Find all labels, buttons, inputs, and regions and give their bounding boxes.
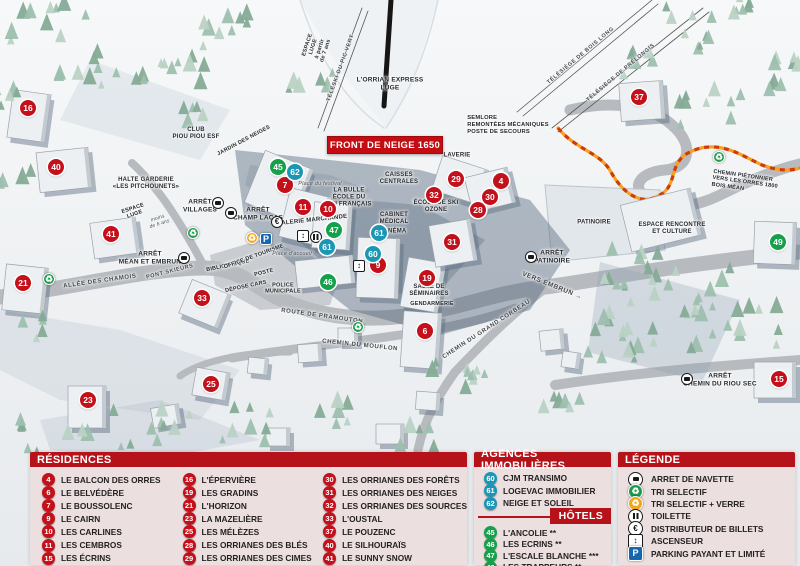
legend-item-label: LES ORRIANES DES CIMES: [202, 553, 312, 563]
legend-item: ♻TRI SELECTIF + VERRE: [628, 498, 795, 510]
map-label: CAISSES CENTRALES: [380, 172, 418, 186]
legend-item-label: ARRET DE NAVETTE: [651, 474, 734, 484]
elevator-icon: ↕: [297, 230, 309, 242]
map-label: ESPACE LUGE à partir de 7 ans: [301, 33, 333, 63]
bus-icon: [525, 251, 537, 263]
legend-item: ↕ASCENSEUR: [628, 535, 795, 547]
parking-icon: P: [260, 233, 272, 245]
map-label: ESPACE RENCONTRE ET CULTURE: [638, 222, 705, 236]
legend-item: 40LE SILHOURAÏS: [323, 538, 467, 551]
marker-number: 11: [42, 539, 55, 552]
marker-number: 62: [484, 497, 497, 510]
legend-item-label: L'ESCALE BLANCHE ***: [503, 551, 599, 561]
marker-number: 25: [183, 525, 196, 538]
legend-item-label: LES CEMBROS: [61, 540, 122, 550]
map-label: ROUTE DE PRAMOUTON: [281, 308, 364, 327]
residences-column: 16L'ÉPERVIÈRE19LES GRADINS21L'HORIZON23L…: [183, 473, 324, 565]
map-marker-19: 19: [419, 270, 435, 286]
map-marker-28: 28: [470, 202, 486, 218]
marker-number: 21: [183, 499, 196, 512]
legend-item-label: LES ORRIANES DES NEIGES: [342, 488, 457, 498]
ski-resort-map: L'ORRIAN EXPRESS LUGEESPACE LUGE à parti…: [0, 0, 800, 566]
map-label: DÉPOSE CARS: [225, 279, 268, 294]
legend-item-label: LES MÉLÈZES: [202, 527, 260, 537]
marker-number: 19: [183, 486, 196, 499]
legend-item: 31LES ORRIANES DES NEIGES: [323, 486, 467, 499]
legend-item: 30LES ORRIANES DES FORÊTS: [323, 473, 467, 486]
map-label: JARDIN DES NEIGES: [216, 124, 271, 157]
map-marker-33: 33: [194, 290, 210, 306]
map-marker-47: 47: [326, 222, 342, 238]
map-label: SEMLORE REMONTÉES MÉCANIQUES POSTE DE SE…: [467, 115, 549, 135]
marker-number: 30: [323, 473, 336, 486]
legend-item-label: LOGEVAC IMMOBILIER: [503, 486, 596, 496]
marker-number: 33: [323, 512, 336, 525]
bus-icon: [178, 252, 190, 264]
map-label: ALLÉE DES CHAMOIS: [63, 273, 137, 290]
map-marker-41: 41: [103, 226, 119, 242]
legend-item: 49LES TRAPPEURS **: [484, 561, 611, 566]
map-label: VERS EMBRUN →: [521, 270, 583, 301]
legend-item-label: LES GRADINS: [202, 488, 259, 498]
legend-item-label: LE CAIRN: [61, 514, 100, 524]
legend-item-label: LE POUZENC: [342, 527, 395, 537]
map-marker-49: 49: [770, 234, 786, 250]
legend-item: ♻TRI SELECTIF: [628, 485, 795, 497]
recycle-green-icon: ♻: [713, 151, 725, 163]
legend-item-label: LES CARLINES: [61, 527, 122, 537]
legend-item-label: LE SILHOURAÏS: [342, 540, 406, 550]
legend-item-label: LE BALCON DES ORRES: [61, 475, 161, 485]
map-label: moins de 6 ans: [147, 213, 170, 231]
legende-header: LÉGENDE: [618, 452, 795, 467]
recycle-green-icon: ♻: [187, 227, 199, 239]
legend-item-label: LES ORRIANES DES FORÊTS: [342, 475, 460, 485]
marker-number: 40: [323, 539, 336, 552]
legend-item: 19LES GRADINS: [183, 486, 324, 499]
map-marker-45: 45: [270, 159, 286, 175]
marker-number: 41: [323, 552, 336, 565]
legend-item: 45L'ANCOLIE **: [484, 527, 611, 539]
legend-item: 46LES ECRINS **: [484, 538, 611, 550]
marker-number: 60: [484, 472, 497, 485]
map-marker-29: 29: [448, 171, 464, 187]
residences-list: 4LE BALCON DES ORRES6LE BELVÉDÈRE7LE BOU…: [30, 467, 467, 565]
legend-item: 7LE BOUSSOLENC: [42, 499, 183, 512]
legend-item-label: DISTRIBUTEUR DE BILLETS: [651, 524, 763, 534]
panel-agences-hotels: AGENCES IMMOBILIÈRES 60CJM TRANSIMO61LOG…: [474, 452, 611, 565]
legend-item-label: LE BELVÉDÈRE: [61, 488, 124, 498]
map-label: HALTE GARDERIE «LES PITCHOUNETS»: [113, 177, 179, 191]
legend-item-label: LES TRAPPEURS **: [503, 562, 581, 566]
legend-item: 16L'ÉPERVIÈRE: [183, 473, 324, 486]
map-marker-25: 25: [203, 376, 219, 392]
marker-number: 49: [484, 561, 497, 566]
legend-item-label: LES ORRIANES DES SOURCES: [342, 501, 467, 511]
legend-item-label: L'ANCOLIE **: [503, 528, 556, 538]
map-label: ARRÊT CHEMIN DU RIOU SEC: [683, 372, 757, 387]
map-annotations: L'ORRIAN EXPRESS LUGEESPACE LUGE à parti…: [0, 0, 800, 450]
map-label: CHEMIN DU GRAND CORBEAU: [442, 299, 533, 361]
legend-item: 10LES CARLINES: [42, 525, 183, 538]
agences-header: AGENCES IMMOBILIÈRES: [474, 452, 611, 467]
legend-item: 15LES ÉCRINS: [42, 552, 183, 565]
residences-column: 4LE BALCON DES ORRES6LE BELVÉDÈRE7LE BOU…: [42, 473, 183, 565]
map-label: CLUB PIOU PIOU ESF: [173, 127, 220, 141]
map-label: ARRÊT PATINOIRE: [534, 249, 570, 264]
marker-number: 9: [42, 512, 55, 525]
recycle-glass-icon: ♻: [246, 232, 258, 244]
elevator-icon: ↕: [353, 260, 365, 272]
legend-item: 33L'OUSTAL: [323, 512, 467, 525]
map-marker-46: 46: [320, 274, 336, 290]
map-label: PONT SKIEURS: [146, 263, 195, 281]
map-marker-21: 21: [15, 275, 31, 291]
map-label: TÉLÉSIÈGE DE BOIS LONG: [546, 26, 616, 86]
bus-icon: [681, 373, 693, 385]
legend-item: 29LES ORRIANES DES CIMES: [183, 552, 324, 565]
map-label: CABINET MÉDICAL: [380, 212, 409, 226]
marker-number: 31: [323, 486, 336, 499]
hotels-header: HÔTELS: [550, 508, 611, 524]
parking-icon: P: [628, 546, 643, 561]
legend-item: 23LA MAZELIÈRE: [183, 512, 324, 525]
legend-item: 41LE SUNNY SNOW: [323, 552, 467, 565]
legend-item-label: LA MAZELIÈRE: [202, 514, 263, 524]
legend-item: 61LOGEVAC IMMOBILIER: [484, 485, 611, 498]
map-label: LAVERIE: [444, 152, 471, 159]
front-de-neige-banner: FRONT DE NEIGE 1650: [327, 136, 443, 154]
panel-residences: RÉSIDENCES 4LE BALCON DES ORRES6LE BELVÉ…: [30, 452, 467, 565]
marker-number: 6: [42, 486, 55, 499]
legend-item-label: CJM TRANSIMO: [503, 473, 567, 483]
legend-item: 9LE CAIRN: [42, 512, 183, 525]
map-marker-16: 16: [20, 100, 36, 116]
legend-item: 28LES ORRIANES DES BLÉS: [183, 538, 324, 551]
legend-item-label: TOILETTE: [651, 511, 691, 521]
map-label: SALLE DE SÉMINAIRES: [409, 284, 448, 298]
map-label: ARRÊT MÉAN ET EMBRUN: [119, 250, 181, 265]
map-marker-30: 30: [482, 189, 498, 205]
recycle-green-icon: ♻: [352, 321, 364, 333]
map-label: CHEMIN DU MOUFLON: [322, 338, 399, 353]
legend-item: €DISTRIBUTEUR DE BILLETS: [628, 523, 795, 535]
map-marker-15: 15: [771, 371, 787, 387]
legend-item: PPARKING PAYANT ET LIMITÉ: [628, 547, 795, 559]
marker-number: 7: [42, 499, 55, 512]
map-marker-10: 10: [320, 201, 336, 217]
map-marker-4: 4: [493, 173, 509, 189]
map-label: GENDARMERIE: [410, 301, 453, 307]
legend-item-label: ASCENSEUR: [651, 536, 703, 546]
map-marker-62: 62: [287, 164, 303, 180]
legend-item-label: LES ÉCRINS: [61, 553, 111, 563]
map-label: CHEMIN PIÉTONNIER VERS LES ORRES 1800 BO…: [711, 169, 779, 197]
marker-number: 23: [183, 512, 196, 525]
map-label: PATINOIRE: [577, 219, 611, 226]
legend-item: 37LE POUZENC: [323, 525, 467, 538]
marker-number: 61: [484, 484, 497, 497]
map-marker-7: 7: [277, 177, 293, 193]
legend-item: 32LES ORRIANES DES SOURCES: [323, 499, 467, 512]
hotels-divider: HÔTELS: [474, 512, 611, 522]
map-marker-60: 60: [365, 246, 381, 262]
hotels-list: 45L'ANCOLIE **46LES ECRINS **47L'ESCALE …: [474, 522, 611, 566]
map-marker-6: 6: [417, 323, 433, 339]
legend-item-label: TRI SELECTIF: [651, 487, 707, 497]
legend-item: 21L'HORIZON: [183, 499, 324, 512]
map-label: L'ORRIAN EXPRESS LUGE: [357, 76, 424, 91]
legend-item: TOILETTE: [628, 510, 795, 522]
agences-list: 60CJM TRANSIMO61LOGEVAC IMMOBILIER62NEIG…: [474, 467, 611, 510]
legend-item-label: LES ORRIANES DES BLÉS: [202, 540, 308, 550]
map-label: Place du festival: [298, 181, 341, 187]
map-marker-61: 61: [371, 225, 387, 241]
map-marker-61: 61: [319, 239, 335, 255]
marker-number: 10: [42, 525, 55, 538]
map-marker-31: 31: [444, 234, 460, 250]
map-label: POSTE: [254, 267, 275, 278]
marker-number: 32: [323, 499, 336, 512]
marker-number: 16: [183, 473, 196, 486]
legend-item-label: L'OUSTAL: [342, 514, 383, 524]
legend-item: 4LE BALCON DES ORRES: [42, 473, 183, 486]
legend-item-label: LE BOUSSOLENC: [61, 501, 132, 511]
legend-item: 60CJM TRANSIMO: [484, 472, 611, 485]
legend-item-label: TRI SELECTIF + VERRE: [651, 499, 745, 509]
legend-item: 6LE BELVÉDÈRE: [42, 486, 183, 499]
legend-item: ARRET DE NAVETTE: [628, 473, 795, 485]
map-label: Place d'accueil: [272, 251, 312, 257]
marker-number: 29: [183, 552, 196, 565]
panel-legende: LÉGENDE ARRET DE NAVETTE♻TRI SELECTIF♻TR…: [618, 452, 795, 565]
marker-number: 4: [42, 473, 55, 486]
map-label: POLICE MUNICIPALE: [265, 283, 301, 296]
map-label: ESPACE LUGE: [121, 202, 147, 222]
recycle-green-icon: ♻: [43, 273, 55, 285]
legend-item: 11LES CEMBROS: [42, 538, 183, 551]
map-marker-40: 40: [48, 159, 64, 175]
bus-icon: [225, 207, 237, 219]
map-marker-32: 32: [426, 187, 442, 203]
legend-item-label: PARKING PAYANT ET LIMITÉ: [651, 549, 765, 559]
marker-number: 15: [42, 552, 55, 565]
map-marker-23: 23: [80, 392, 96, 408]
atm-euro-icon: €: [271, 216, 283, 228]
legend-item-label: LES ECRINS **: [503, 539, 562, 549]
legend-item: 25LES MÉLÈZES: [183, 525, 324, 538]
residences-header: RÉSIDENCES: [30, 452, 467, 467]
legend-item-label: LE SUNNY SNOW: [342, 553, 412, 563]
marker-number: 28: [183, 539, 196, 552]
legende-list: ARRET DE NAVETTE♻TRI SELECTIF♻TRI SELECT…: [618, 467, 795, 560]
legend-item-label: L'ÉPERVIÈRE: [202, 475, 256, 485]
residences-column: 30LES ORRIANES DES FORÊTS31LES ORRIANES …: [323, 473, 467, 565]
map-marker-37: 37: [631, 89, 647, 105]
legend-item: 47L'ESCALE BLANCHE ***: [484, 550, 611, 562]
map-marker-11: 11: [295, 199, 311, 215]
legend-item-label: L'HORIZON: [202, 501, 247, 511]
marker-number: 37: [323, 525, 336, 538]
bus-icon: [212, 197, 224, 209]
